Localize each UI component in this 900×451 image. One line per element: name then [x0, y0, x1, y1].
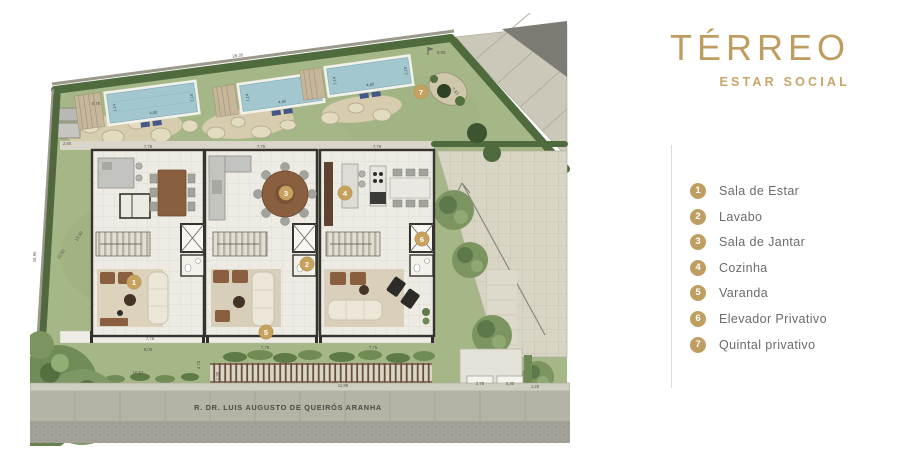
armchair [330, 272, 346, 285]
legend-label: Elevador Privativo [719, 312, 827, 326]
dim-side-small: 1,50 [215, 371, 220, 380]
info-panel: TÉRREO ESTAR SOCIAL 1 Sala de Estar 2 La… [560, 0, 900, 446]
plan-badge-2: 2 [300, 257, 314, 271]
page-subtitle: ESTAR SOCIAL [570, 75, 850, 89]
dim-back-flag: 8,90 [437, 50, 446, 55]
svg-text:5: 5 [264, 328, 268, 337]
armchair [350, 272, 366, 285]
legend-label: Sala de Jantar [719, 235, 805, 249]
dining-table [390, 178, 430, 198]
legend-badge-2: 2 [690, 209, 706, 225]
legend-badge-7: 7 [690, 337, 706, 353]
legend-label: Varanda [719, 286, 768, 300]
dim-shed-top: 0,75 [92, 101, 101, 106]
legend-badge-4: 4 [690, 260, 706, 276]
unit-2 [205, 150, 317, 336]
lavabo [410, 255, 433, 276]
legend-item-sala-de-jantar: 3 Sala de Jantar [690, 234, 827, 250]
legend-item-sala-de-estar: 1 Sala de Estar [690, 183, 827, 199]
legend-label: Cozinha [719, 261, 768, 275]
legend-item-lavabo: 2 Lavabo [690, 209, 827, 225]
dim-lot-c: 1,20 [531, 384, 540, 389]
legend-label: Lavabo [719, 210, 762, 224]
legend-item-elevador-privativo: 6 Elevador Privativo [690, 311, 827, 327]
svg-text:7: 7 [419, 88, 423, 97]
coffee-table [124, 294, 136, 306]
street: R. DR. LUIS AUGUSTO DE QUEIRÓS ARANHA [30, 383, 570, 443]
dim-side-depth: 4,75 [196, 360, 201, 369]
dim-shed: 2,60 [63, 141, 72, 146]
floor-plan: 4,80 1,14 2,10 4,80 1,14 2,10 4,80 1,14 … [30, 5, 570, 446]
svg-text:3: 3 [284, 189, 288, 198]
dim-lot-a: 2,75 [476, 381, 485, 386]
legend-label: Sala de Estar [719, 184, 799, 198]
legend-badge-6: 6 [690, 311, 706, 327]
dim-unit-width: 7,75 [373, 144, 382, 149]
street-name: R. DR. LUIS AUGUSTO DE QUEIRÓS ARANHA [194, 403, 382, 412]
title-block: TÉRREO ESTAR SOCIAL [570, 30, 850, 89]
legend-item-varanda: 5 Varanda [690, 285, 827, 301]
sofa [328, 300, 382, 320]
armchair [213, 270, 229, 283]
dim-lot-b: 2,30 [506, 381, 515, 386]
page-title: TÉRREO [570, 30, 850, 66]
plan-badge-5: 5 [259, 325, 273, 339]
fridge [370, 192, 386, 204]
legend-item-quintal-privativo: 7 Quintal privativo [690, 337, 827, 353]
legend-badge-5: 5 [690, 285, 706, 301]
dim-left-total: 16,95 [32, 251, 38, 263]
dim-yard-depth: 10,52 [133, 370, 144, 375]
legend-label: Quintal privativo [719, 338, 815, 352]
dining-table [158, 170, 186, 216]
legend-item-cozinha: 4 Cozinha [690, 260, 827, 276]
plan-badge-7: 7 [414, 85, 428, 99]
sofa [148, 272, 168, 324]
dim-terrace: 7,75 [369, 345, 378, 350]
legend-badge-3: 3 [690, 234, 706, 250]
armchair [232, 270, 248, 283]
legend-badge-1: 1 [690, 183, 706, 199]
closet [120, 194, 150, 218]
dim-front-width: 11,99 [338, 383, 349, 388]
dim-terrace: 7,75 [146, 336, 155, 341]
dim-unit-width: 7,75 [257, 144, 266, 149]
svg-text:1: 1 [132, 278, 136, 287]
floor-plan-drawing: 4,80 1,14 2,10 4,80 1,14 2,10 4,80 1,14 … [30, 5, 570, 446]
dim-unit-width: 7,75 [144, 144, 153, 149]
plan-badge-6: 6 [415, 232, 429, 246]
kitchen-cabinet [324, 162, 333, 226]
dim-terrace: 7,75 [261, 345, 270, 350]
plan-badge-4: 4 [338, 186, 352, 200]
dim-yard-width: 8,00 [144, 347, 153, 352]
street-asphalt [30, 421, 570, 443]
plan-badge-1: 1 [127, 275, 141, 289]
sofa [252, 272, 274, 326]
lavabo [181, 255, 204, 276]
unit-1 [92, 150, 204, 336]
coffee-table [233, 296, 245, 308]
svg-text:2: 2 [305, 260, 309, 269]
armchair [100, 272, 115, 284]
divider-line [671, 145, 672, 388]
front-fence [210, 363, 432, 383]
legend: 1 Sala de Estar 2 Lavabo 3 Sala de Janta… [690, 183, 827, 353]
plan-badge-3: 3 [279, 186, 293, 200]
svg-text:6: 6 [420, 235, 424, 244]
bench [100, 318, 128, 326]
coffee-table [359, 285, 369, 295]
